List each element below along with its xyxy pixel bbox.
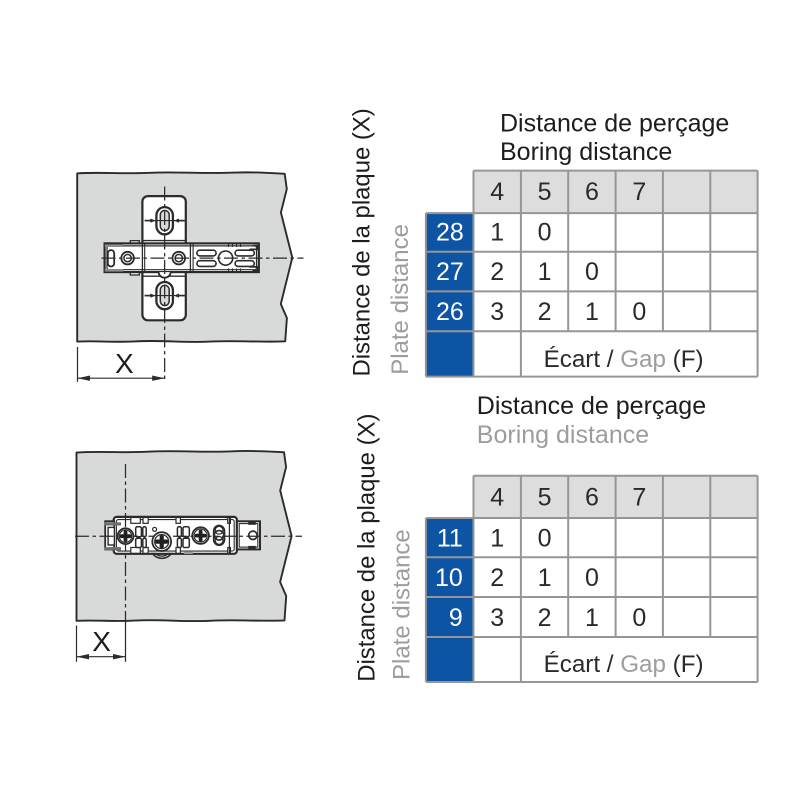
svg-text:2: 2 [490, 258, 504, 286]
svg-text:1: 1 [490, 525, 504, 553]
svg-text:Écart / Gap (F): Écart / Gap (F) [544, 651, 704, 678]
svg-text:10: 10 [435, 564, 463, 592]
svg-text:6: 6 [585, 178, 599, 206]
svg-text:4: 4 [490, 178, 504, 206]
svg-text:0: 0 [632, 298, 646, 326]
svg-text:7: 7 [632, 484, 646, 512]
svg-text:1: 1 [490, 219, 504, 247]
svg-text:6: 6 [585, 484, 599, 512]
svg-text:5: 5 [538, 484, 552, 512]
svg-text:0: 0 [538, 525, 552, 553]
svg-text:2: 2 [538, 604, 552, 632]
svg-text:0: 0 [585, 564, 599, 592]
svg-text:4: 4 [490, 484, 504, 512]
svg-text:26: 26 [436, 298, 464, 326]
svg-text:0: 0 [585, 258, 599, 286]
svg-text:1: 1 [585, 298, 599, 326]
svg-text:Distance de la plaque (X): Distance de la plaque (X) [349, 108, 376, 376]
svg-text:1: 1 [538, 564, 552, 592]
svg-text:Distance de perçage: Distance de perçage [477, 392, 706, 420]
svg-text:Plate distance: Plate distance [387, 224, 414, 375]
svg-text:Distance de perçage: Distance de perçage [500, 110, 729, 138]
svg-text:1: 1 [585, 604, 599, 632]
svg-text:0: 0 [632, 604, 646, 632]
svg-text:X: X [115, 348, 134, 379]
svg-text:Écart / Gap (F): Écart / Gap (F) [544, 346, 704, 373]
svg-text:3: 3 [490, 298, 504, 326]
svg-text:7: 7 [632, 178, 646, 206]
svg-text:2: 2 [538, 298, 552, 326]
svg-text:Plate distance: Plate distance [389, 529, 416, 680]
svg-text:Distance de la plaque (X): Distance de la plaque (X) [354, 414, 381, 682]
svg-text:X: X [92, 626, 111, 657]
svg-text:Boring distance: Boring distance [477, 421, 649, 449]
svg-text:9: 9 [449, 604, 463, 632]
svg-text:1: 1 [538, 258, 552, 286]
svg-text:5: 5 [538, 178, 552, 206]
svg-text:Boring distance: Boring distance [500, 138, 672, 166]
svg-text:28: 28 [436, 219, 464, 247]
svg-text:27: 27 [436, 258, 464, 286]
svg-text:11: 11 [437, 525, 463, 553]
svg-text:3: 3 [490, 604, 504, 632]
svg-text:2: 2 [490, 564, 504, 592]
svg-text:0: 0 [538, 219, 552, 247]
